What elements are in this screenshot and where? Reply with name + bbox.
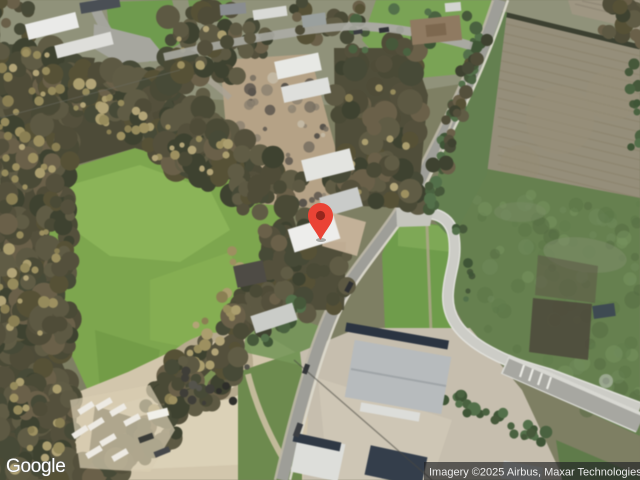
svg-text:Google: Google (6, 456, 65, 477)
svg-text:Imagery ©2025 Airbus, Maxar Te: Imagery ©2025 Airbus, Maxar Technologies (429, 467, 640, 479)
